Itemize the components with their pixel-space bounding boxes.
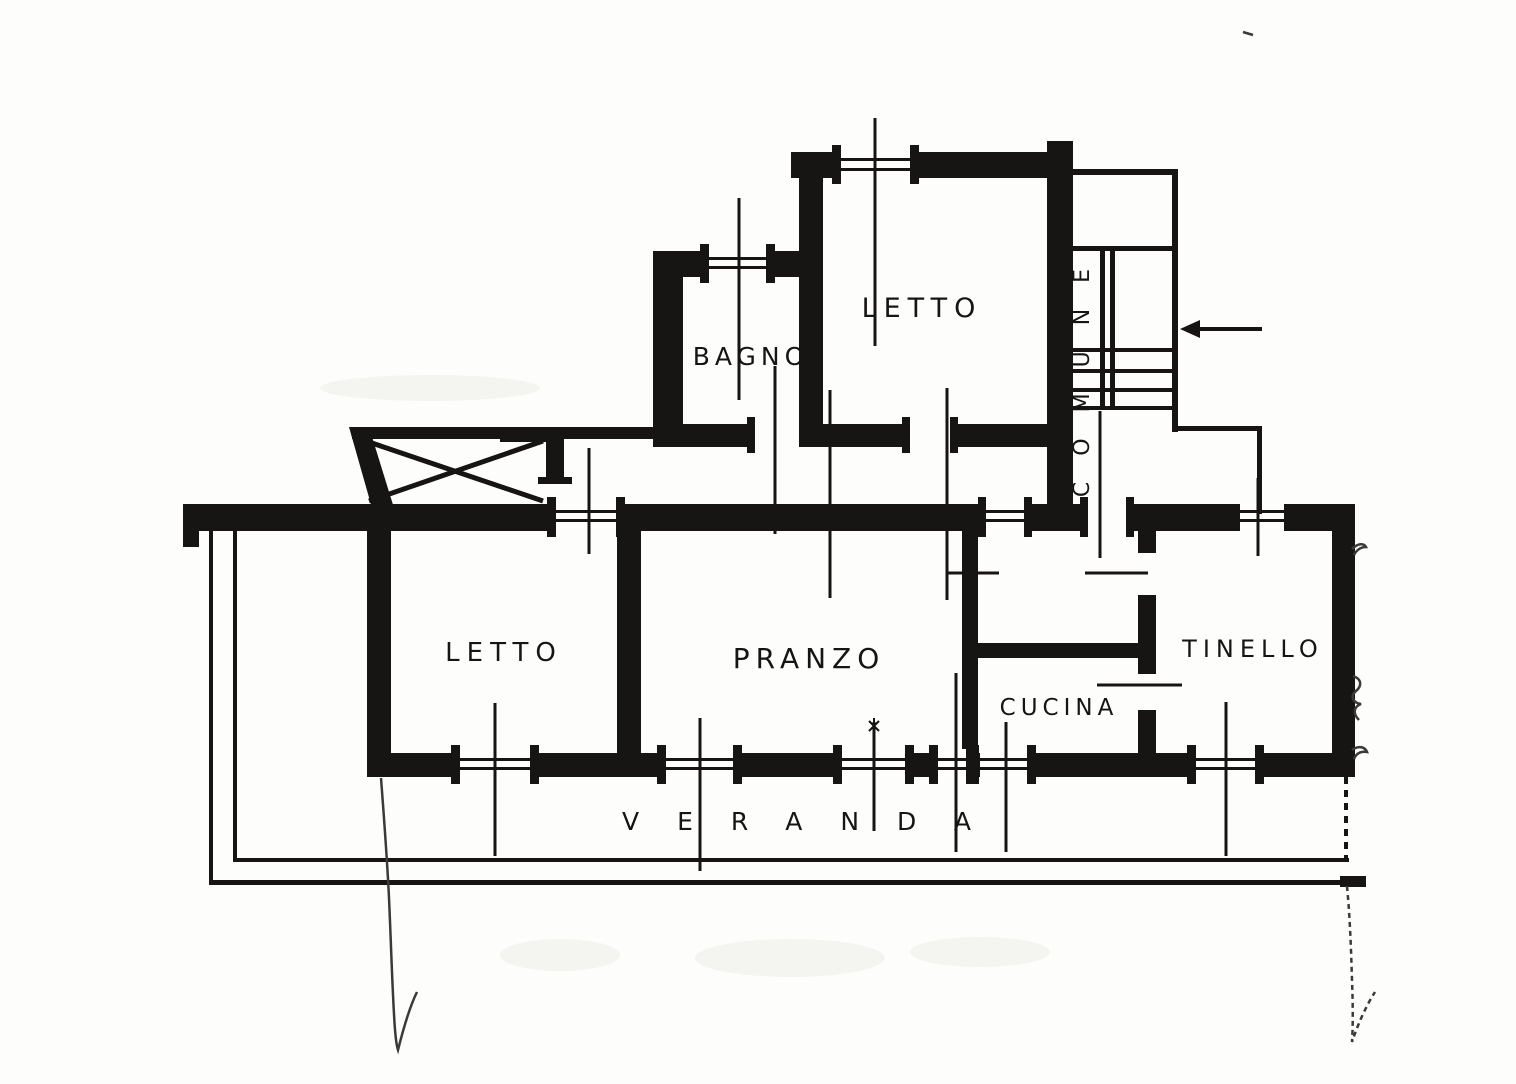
room-label-letto-top: LETTO — [862, 293, 983, 324]
floor-plan-scan: LETTO BAGNO LETTO PRANZO CUCINA TINELLO … — [0, 0, 1516, 1084]
room-label-pranzo: PRANZO — [733, 642, 886, 675]
floor-plan-drawing: LETTO BAGNO LETTO PRANZO CUCINA TINELLO … — [0, 0, 1516, 1084]
room-label-bagno: BAGNO — [693, 342, 810, 371]
room-label-tinello: TINELLO — [1181, 635, 1324, 663]
veranda-label: VERANDA — [622, 807, 1009, 836]
paper-background — [0, 0, 1516, 1084]
room-label-letto-left: LETTO — [445, 638, 563, 668]
room-label-cucina: CUCINA — [1000, 695, 1119, 721]
stairwell-comune-label: COMUNE — [1070, 243, 1095, 497]
